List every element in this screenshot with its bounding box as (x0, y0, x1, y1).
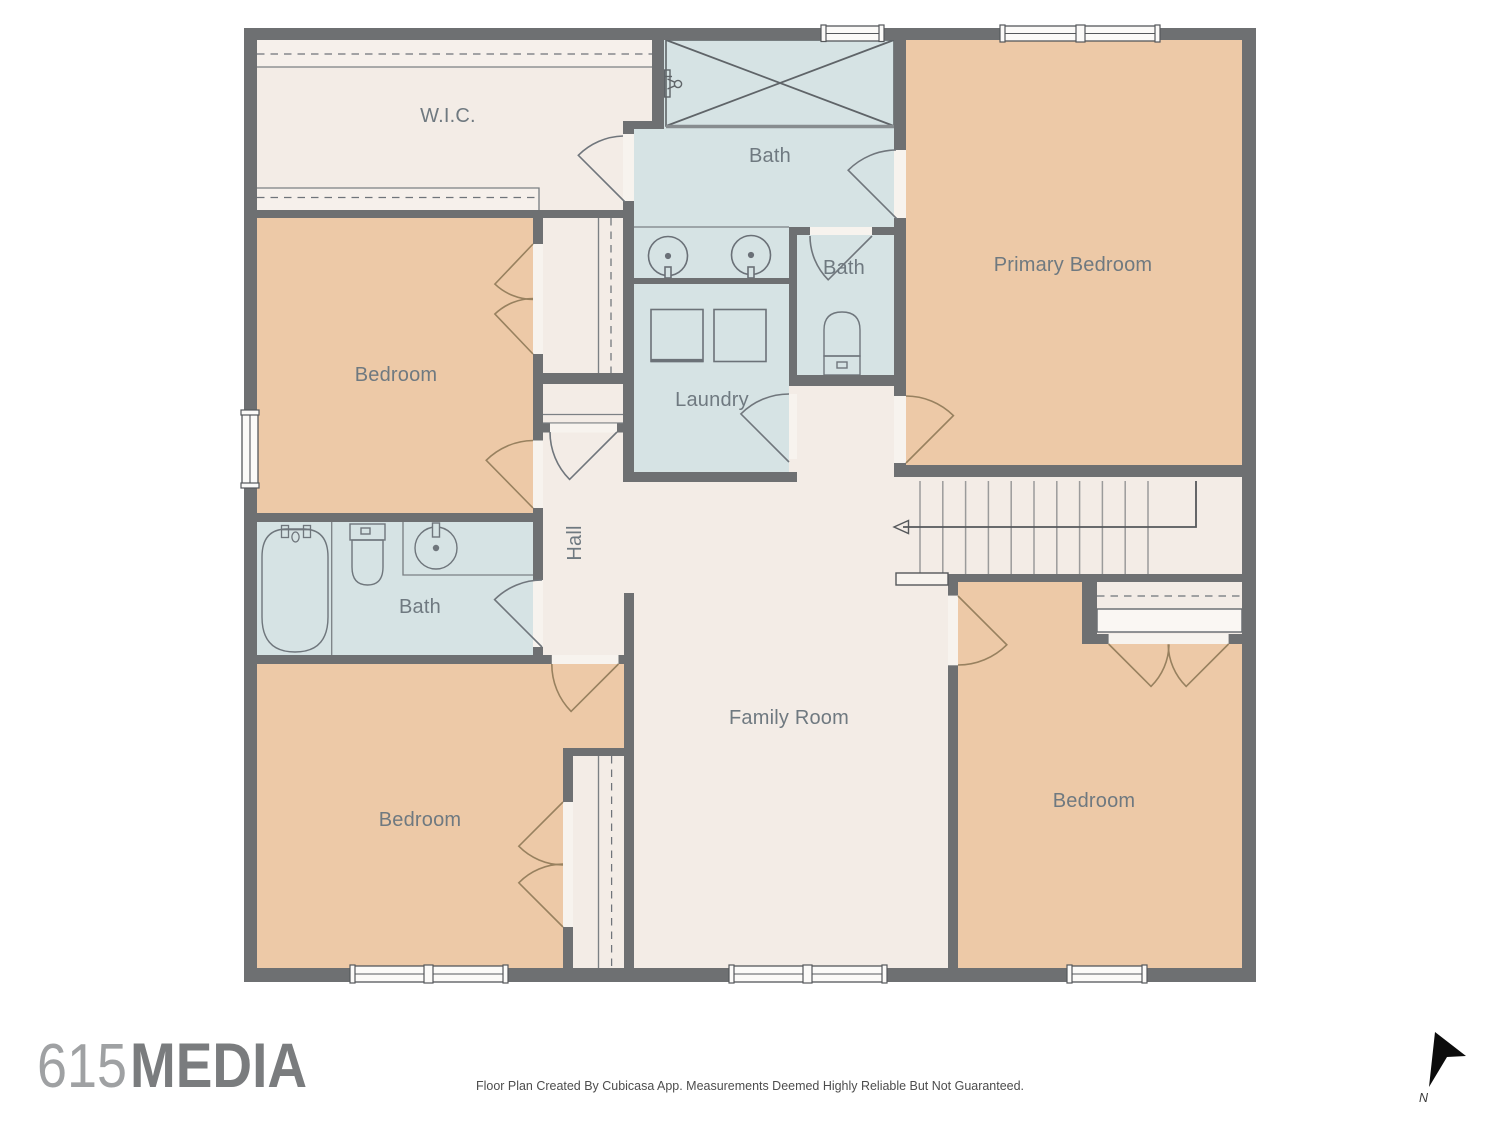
svg-text:Primary Bedroom: Primary Bedroom (994, 254, 1153, 276)
svg-text:W.I.C.: W.I.C. (420, 105, 476, 127)
svg-text:Family Room: Family Room (729, 707, 849, 729)
svg-text:MEDIA: MEDIA (130, 1031, 307, 1101)
svg-text:Bedroom: Bedroom (379, 809, 462, 831)
svg-text:615: 615 (37, 1032, 127, 1101)
svg-text:Floor Plan Created By Cubicasa: Floor Plan Created By Cubicasa App. Meas… (476, 1079, 1024, 1093)
svg-text:Bedroom: Bedroom (1053, 790, 1136, 812)
svg-text:Bedroom: Bedroom (355, 364, 438, 386)
svg-text:Laundry: Laundry (675, 389, 749, 411)
svg-text:Bath: Bath (749, 145, 791, 167)
svg-text:Bath: Bath (823, 257, 865, 279)
svg-text:N: N (1419, 1091, 1429, 1105)
svg-text:Hall: Hall (564, 525, 586, 560)
svg-text:Bath: Bath (399, 596, 441, 618)
